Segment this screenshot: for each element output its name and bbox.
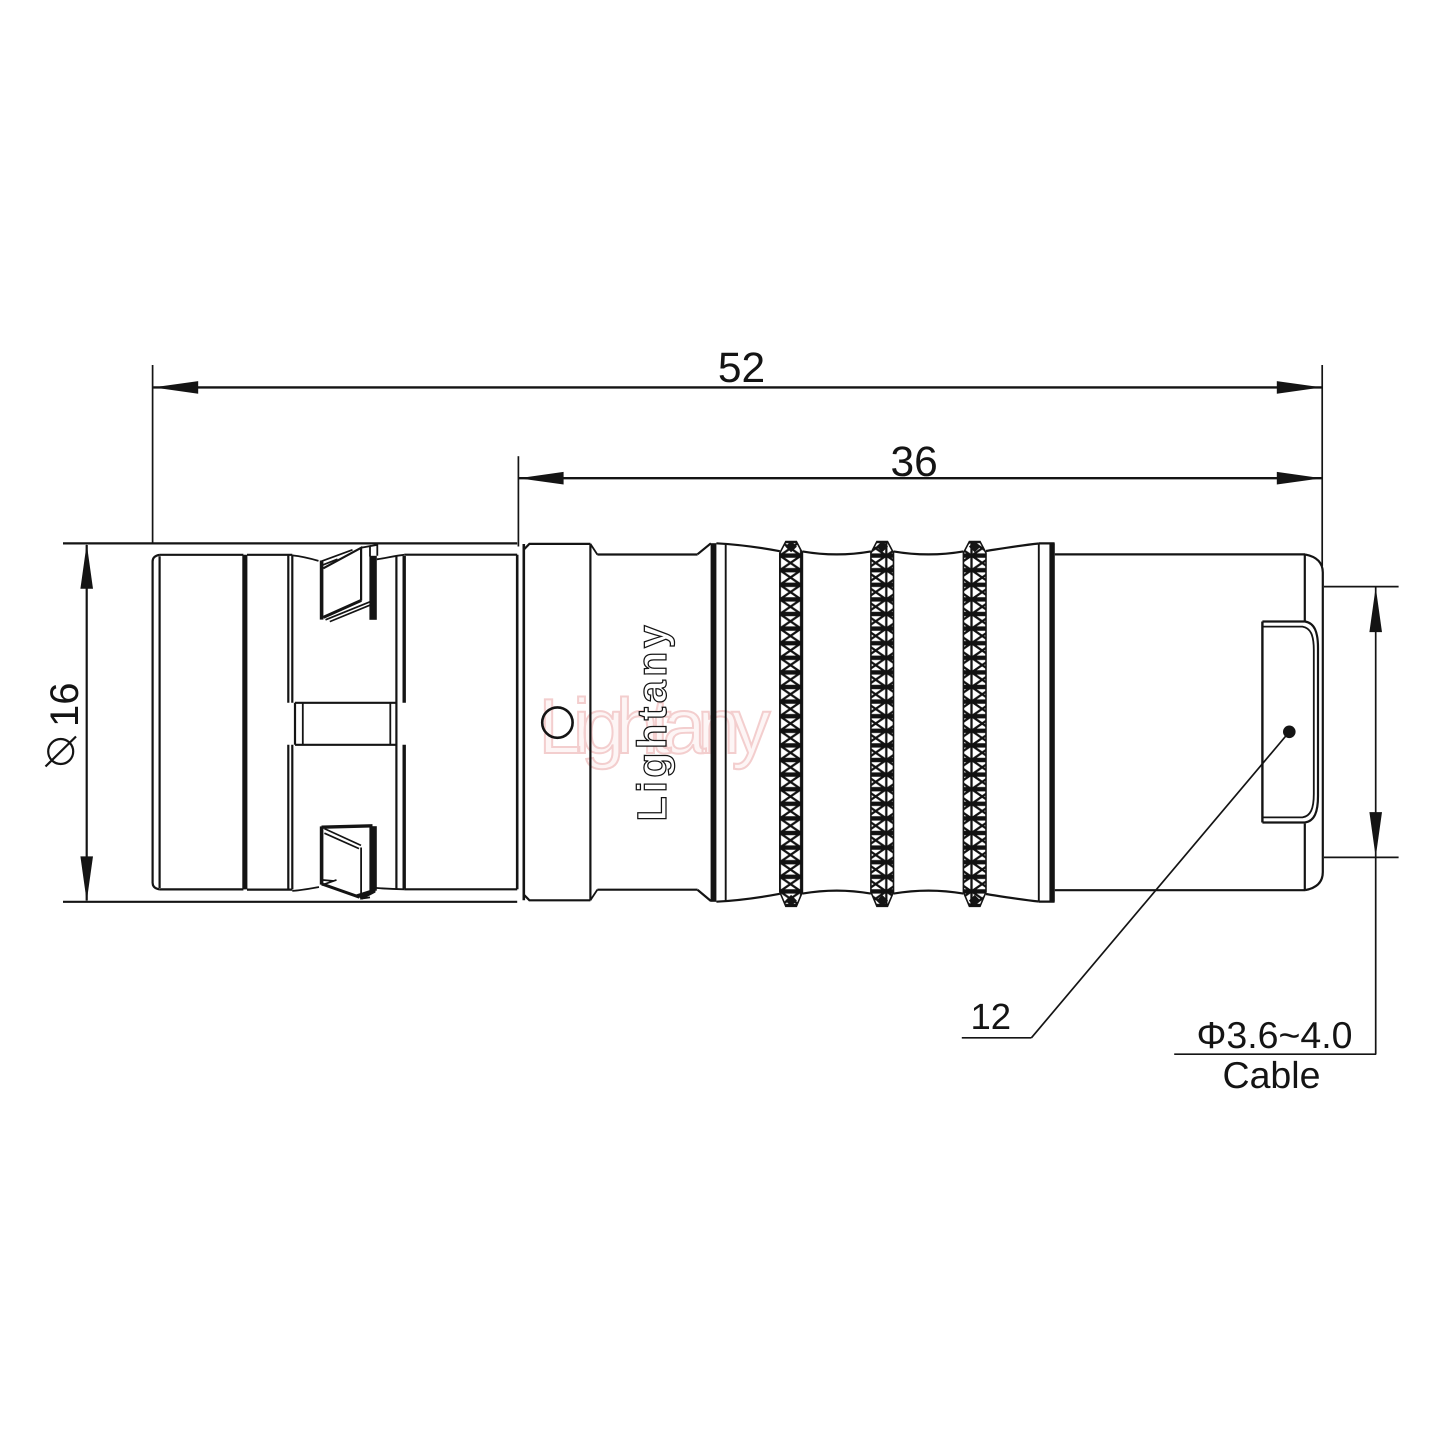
svg-text:52: 52 [718, 345, 765, 392]
svg-text:16: 16 [43, 683, 87, 728]
svg-text:36: 36 [891, 439, 938, 486]
svg-text:Φ3.6~4.0: Φ3.6~4.0 [1196, 1014, 1352, 1056]
svg-text:12: 12 [970, 996, 1011, 1037]
svg-text:Cable: Cable [1223, 1054, 1321, 1096]
svg-text:Lightany: Lightany [629, 622, 675, 822]
